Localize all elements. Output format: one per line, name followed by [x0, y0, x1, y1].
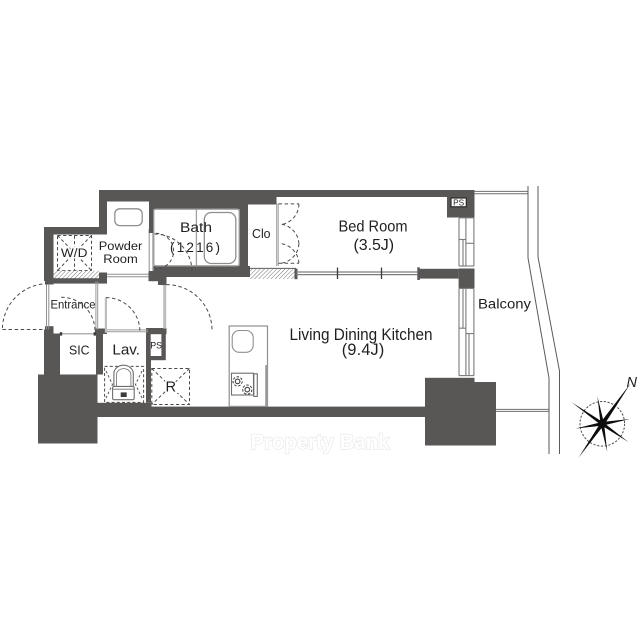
svg-text:Entrance: Entrance: [51, 298, 96, 312]
svg-text:PS: PS: [150, 341, 162, 351]
svg-text:Lav.: Lav.: [112, 342, 140, 358]
svg-text:N: N: [627, 375, 638, 391]
svg-text:Clo: Clo: [252, 227, 271, 241]
svg-text:W/D: W/D: [61, 246, 88, 260]
svg-text:Property Bank: Property Bank: [251, 430, 390, 454]
svg-text:(9.4J): (9.4J): [342, 341, 385, 359]
svg-text:Room: Room: [103, 252, 138, 266]
svg-text:Balcony: Balcony: [478, 297, 531, 312]
svg-text:Bath: Bath: [180, 220, 212, 235]
svg-text:SIC: SIC: [69, 342, 90, 357]
svg-text:PS: PS: [453, 199, 465, 208]
svg-text:Bed Room: Bed Room: [339, 219, 408, 236]
svg-text:(3.5J): (3.5J): [354, 237, 395, 254]
svg-text:R: R: [166, 380, 177, 396]
